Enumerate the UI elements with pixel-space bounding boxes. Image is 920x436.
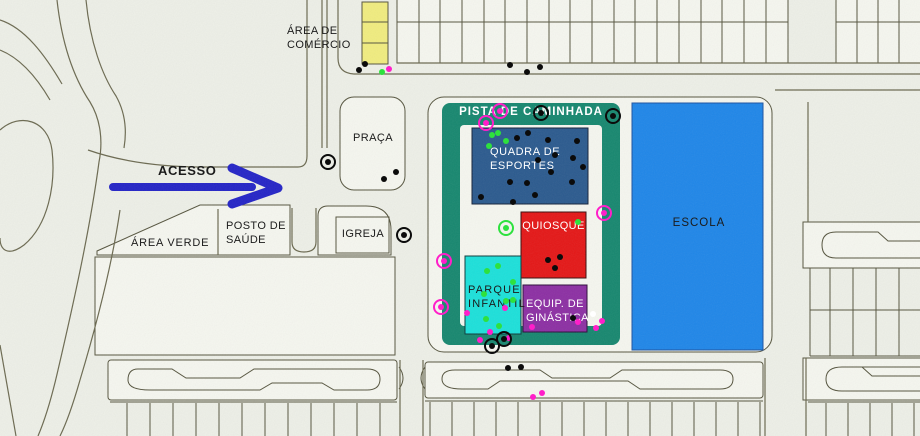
noise-overlay bbox=[0, 0, 920, 436]
site-plan-map: ÁREA DE COMÉRCIO PRAÇA ACESSO ÁREA VERDE… bbox=[0, 0, 920, 436]
map-canvas bbox=[0, 0, 920, 436]
